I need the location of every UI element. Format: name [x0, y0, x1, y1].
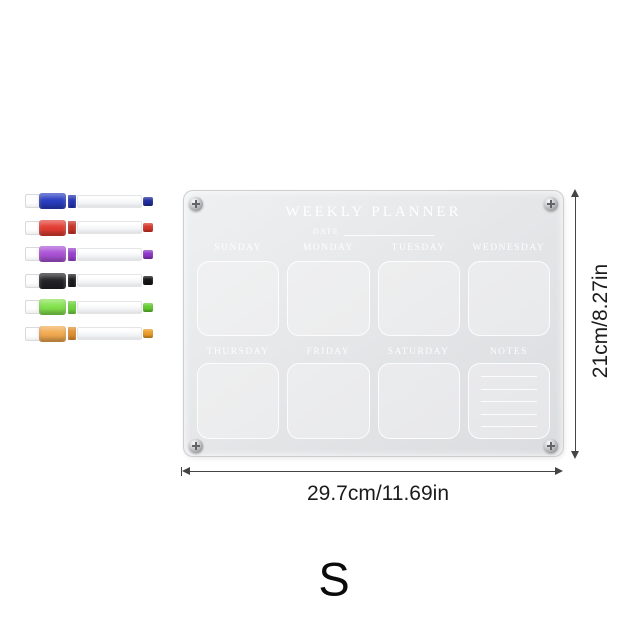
day-cell-monday: MONDAY: [287, 243, 369, 336]
width-dimension-line: [185, 471, 557, 472]
weekly-planner-board: WEEKLY PLANNER DATE SUNDAY MONDAY TUESDA…: [183, 190, 564, 457]
product-image: WEEKLY PLANNER DATE SUNDAY MONDAY TUESDA…: [0, 0, 640, 640]
marker-body: [77, 274, 142, 287]
date-label: DATE: [313, 227, 339, 236]
marker-ring: [68, 274, 76, 287]
day-writing-area: [197, 261, 279, 336]
day-cell-tuesday: TUESDAY: [378, 243, 460, 336]
notes-rule-line: [481, 426, 537, 427]
marker-tip: [143, 197, 153, 206]
day-writing-area: [378, 261, 460, 336]
marker-cap: [39, 299, 66, 315]
marker-blue: [25, 192, 153, 210]
notes-cell: NOTES: [468, 347, 550, 439]
marker-ring: [68, 327, 76, 340]
marker-black: [25, 272, 153, 290]
marker-body: [77, 327, 142, 340]
marker-ring: [68, 221, 76, 234]
date-fill-line: [344, 226, 434, 236]
day-writing-area: [287, 363, 369, 439]
marker-cap: [39, 326, 66, 342]
day-label: SATURDAY: [388, 347, 450, 357]
marker-red: [25, 219, 153, 237]
day-cell-friday: FRIDAY: [287, 347, 369, 439]
day-cell-saturday: SATURDAY: [378, 347, 460, 439]
day-writing-area: [378, 363, 460, 439]
marker-set: [25, 192, 153, 343]
height-dimension-line: [575, 196, 576, 452]
marker-body: [77, 248, 142, 261]
marker-tip: [143, 276, 153, 285]
notes-rule-line: [481, 401, 537, 402]
marker-purple: [25, 245, 153, 263]
width-dimension-label: 29.7cm/11.69in: [307, 482, 449, 506]
size-letter: S: [318, 552, 349, 607]
notes-rule-line: [481, 376, 537, 377]
screw-icon: [189, 439, 203, 453]
notes-rule-line: [481, 389, 537, 390]
marker-orange: [25, 325, 153, 343]
day-cell-sunday: SUNDAY: [197, 243, 279, 336]
day-label: WEDNESDAY: [472, 243, 545, 253]
marker-ring: [68, 195, 76, 208]
marker-cap: [39, 246, 66, 262]
screw-icon: [544, 439, 558, 453]
planner-title: WEEKLY PLANNER: [184, 204, 563, 221]
day-label: THURSDAY: [207, 347, 270, 357]
notes-rule-line: [481, 414, 537, 415]
arrow-up-icon: [571, 189, 579, 197]
planner-row-top: SUNDAY MONDAY TUESDAY WEDNESDAY: [197, 243, 550, 336]
marker-tip: [143, 329, 153, 338]
marker-green: [25, 298, 153, 316]
date-row: DATE: [184, 226, 563, 236]
arrow-left-icon: [182, 467, 190, 475]
day-writing-area: [468, 261, 550, 336]
marker-cap: [39, 273, 66, 289]
marker-body: [77, 221, 142, 234]
marker-tip: [143, 303, 153, 312]
arrow-down-icon: [571, 451, 579, 459]
marker-ring: [68, 301, 76, 314]
marker-tip: [143, 223, 153, 232]
notes-writing-area: [468, 363, 550, 439]
height-dimension-label: 21cm/8.27in: [589, 264, 613, 378]
marker-cap: [39, 193, 66, 209]
day-cell-thursday: THURSDAY: [197, 347, 279, 439]
day-writing-area: [287, 261, 369, 336]
marker-ring: [68, 248, 76, 261]
marker-tip: [143, 250, 153, 259]
planner-row-bottom: THURSDAY FRIDAY SATURDAY NOTES: [197, 347, 550, 439]
marker-cap: [39, 220, 66, 236]
day-cell-wednesday: WEDNESDAY: [468, 243, 550, 336]
day-label: FRIDAY: [307, 347, 351, 357]
arrow-right-icon: [555, 467, 563, 475]
day-label: MONDAY: [303, 243, 354, 253]
day-writing-area: [197, 363, 279, 439]
day-label: TUESDAY: [392, 243, 446, 253]
day-label: SUNDAY: [214, 243, 262, 253]
marker-body: [77, 301, 142, 314]
notes-label: NOTES: [490, 347, 528, 357]
marker-body: [77, 195, 142, 208]
